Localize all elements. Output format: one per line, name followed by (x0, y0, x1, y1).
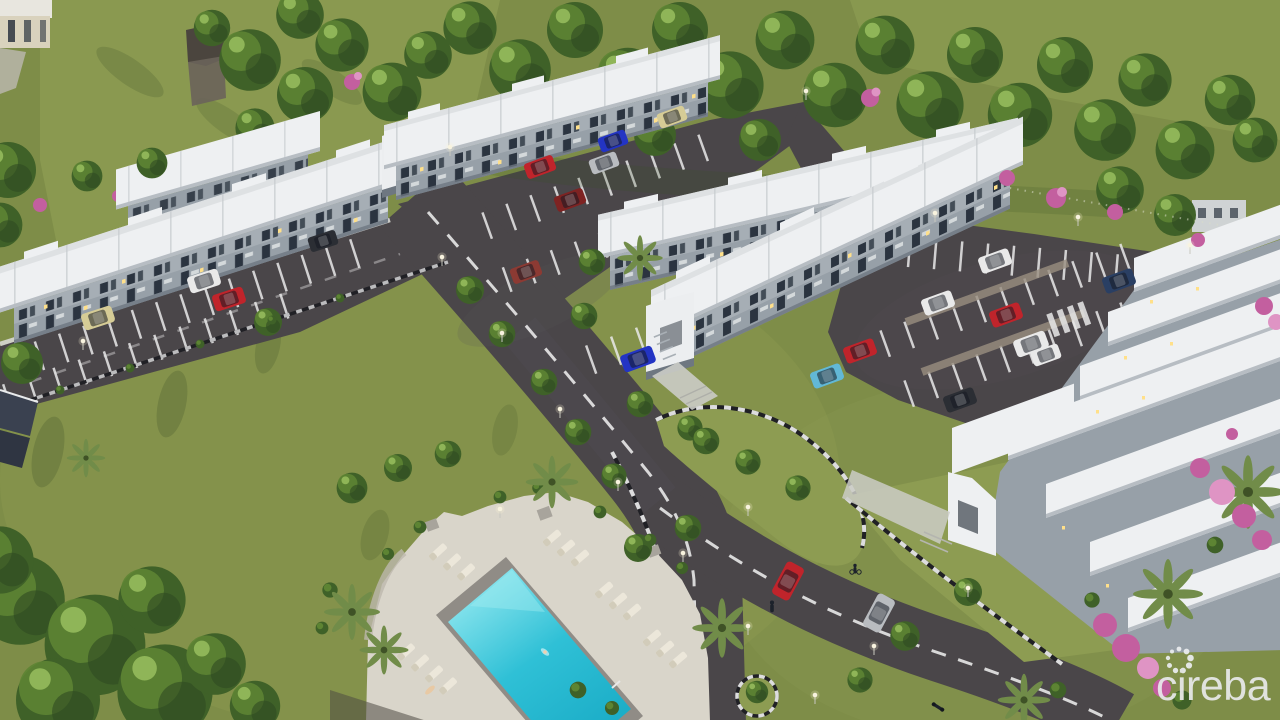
screenshot-root: cireba (0, 0, 1280, 720)
pedestrian (770, 601, 774, 613)
watermark-text: cireba (1156, 662, 1271, 710)
aerial-render: cireba (0, 0, 1280, 720)
